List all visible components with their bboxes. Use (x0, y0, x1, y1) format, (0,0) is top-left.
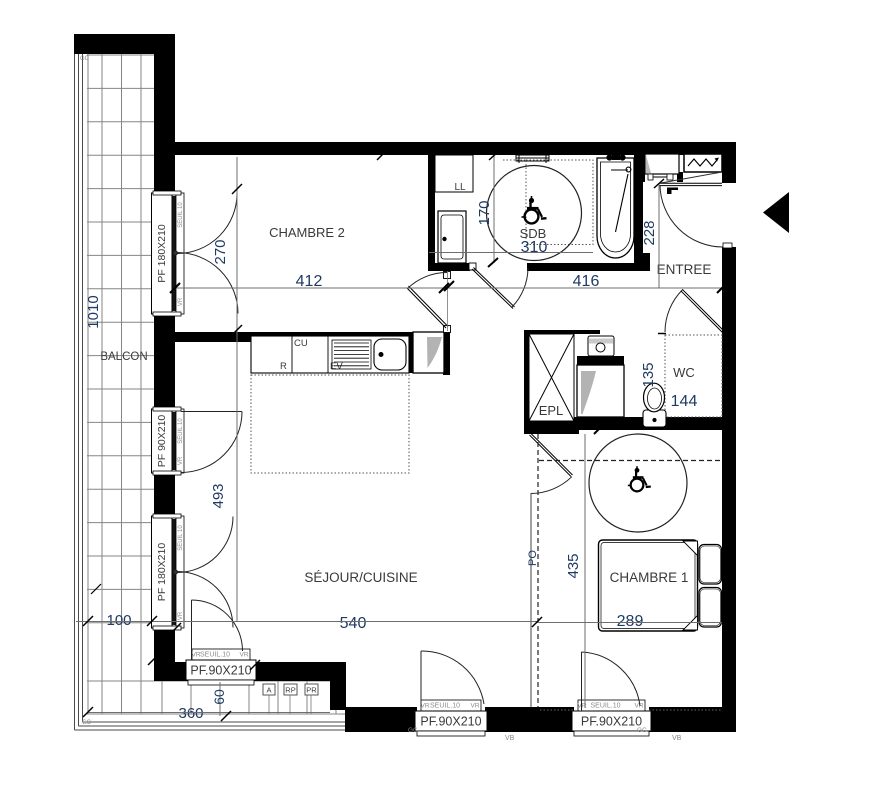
svg-text:289: 289 (617, 613, 644, 630)
svg-text:135: 135 (640, 362, 657, 387)
svg-text:SEUIL.10: SEUIL.10 (430, 703, 460, 710)
svg-text:435: 435 (565, 553, 582, 578)
svg-text:PF.90X210: PF.90X210 (190, 664, 251, 678)
svg-text:SEUIL 10: SEUIL 10 (178, 525, 184, 551)
svg-text:WC: WC (673, 365, 695, 380)
svg-text:A: A (266, 686, 271, 695)
svg-text:VR: VR (191, 652, 200, 659)
svg-text:SEUIL 10: SEUIL 10 (178, 202, 184, 228)
svg-text:BALCON: BALCON (100, 351, 147, 363)
svg-text:VR: VR (239, 652, 248, 659)
svg-text:R: R (280, 361, 287, 372)
svg-text:SEUIL.10: SEUIL.10 (591, 703, 621, 710)
svg-text:360: 360 (178, 705, 203, 722)
svg-text:PF.90X210: PF.90X210 (420, 715, 481, 729)
svg-text:LL: LL (454, 182, 466, 193)
svg-text:VR: VR (470, 703, 479, 710)
svg-text:CHAMBRE 2: CHAMBRE 2 (269, 225, 345, 240)
svg-text:1010: 1010 (85, 295, 102, 328)
svg-text:144: 144 (671, 393, 698, 410)
svg-text:PO: PO (527, 550, 539, 566)
svg-text:GC: GC (637, 727, 647, 734)
svg-text:GC: GC (408, 727, 418, 734)
svg-text:416: 416 (573, 273, 600, 290)
svg-text:GC: GC (82, 720, 92, 726)
svg-text:540: 540 (340, 615, 367, 632)
svg-text:CHAMBRE 1: CHAMBRE 1 (610, 570, 689, 585)
svg-text:EPL: EPL (539, 403, 564, 418)
svg-text:CU: CU (294, 338, 308, 349)
svg-text:SÉJOUR/CUISINE: SÉJOUR/CUISINE (304, 570, 417, 585)
svg-text:60: 60 (211, 689, 227, 705)
svg-text:228: 228 (641, 220, 658, 245)
svg-text:412: 412 (296, 273, 323, 290)
svg-text:PF 180X210: PF 180X210 (156, 224, 168, 283)
svg-text:493: 493 (210, 483, 227, 508)
svg-text:PF 90X210: PF 90X210 (156, 415, 168, 468)
svg-text:VB: VB (505, 735, 515, 742)
svg-text:GC: GC (80, 56, 90, 62)
svg-text:170: 170 (476, 200, 493, 225)
svg-text:VB: VB (672, 735, 682, 742)
svg-text:SEUIL.10: SEUIL.10 (200, 652, 230, 659)
svg-text:310: 310 (521, 239, 548, 256)
svg-text:VR: VR (420, 703, 429, 710)
svg-text:ENTREE: ENTREE (657, 262, 712, 277)
svg-text:100: 100 (106, 612, 131, 629)
svg-text:PF.90X210: PF.90X210 (581, 715, 642, 729)
svg-text:VR: VR (178, 297, 184, 306)
svg-text:VR: VR (178, 611, 184, 620)
svg-text:RP: RP (285, 686, 295, 695)
svg-text:PF 180X210: PF 180X210 (156, 543, 168, 602)
svg-text:SEUIL 10: SEUIL 10 (178, 418, 184, 444)
svg-text:PR: PR (306, 686, 317, 695)
svg-text:270: 270 (212, 239, 229, 264)
svg-text:VR: VR (178, 456, 184, 465)
